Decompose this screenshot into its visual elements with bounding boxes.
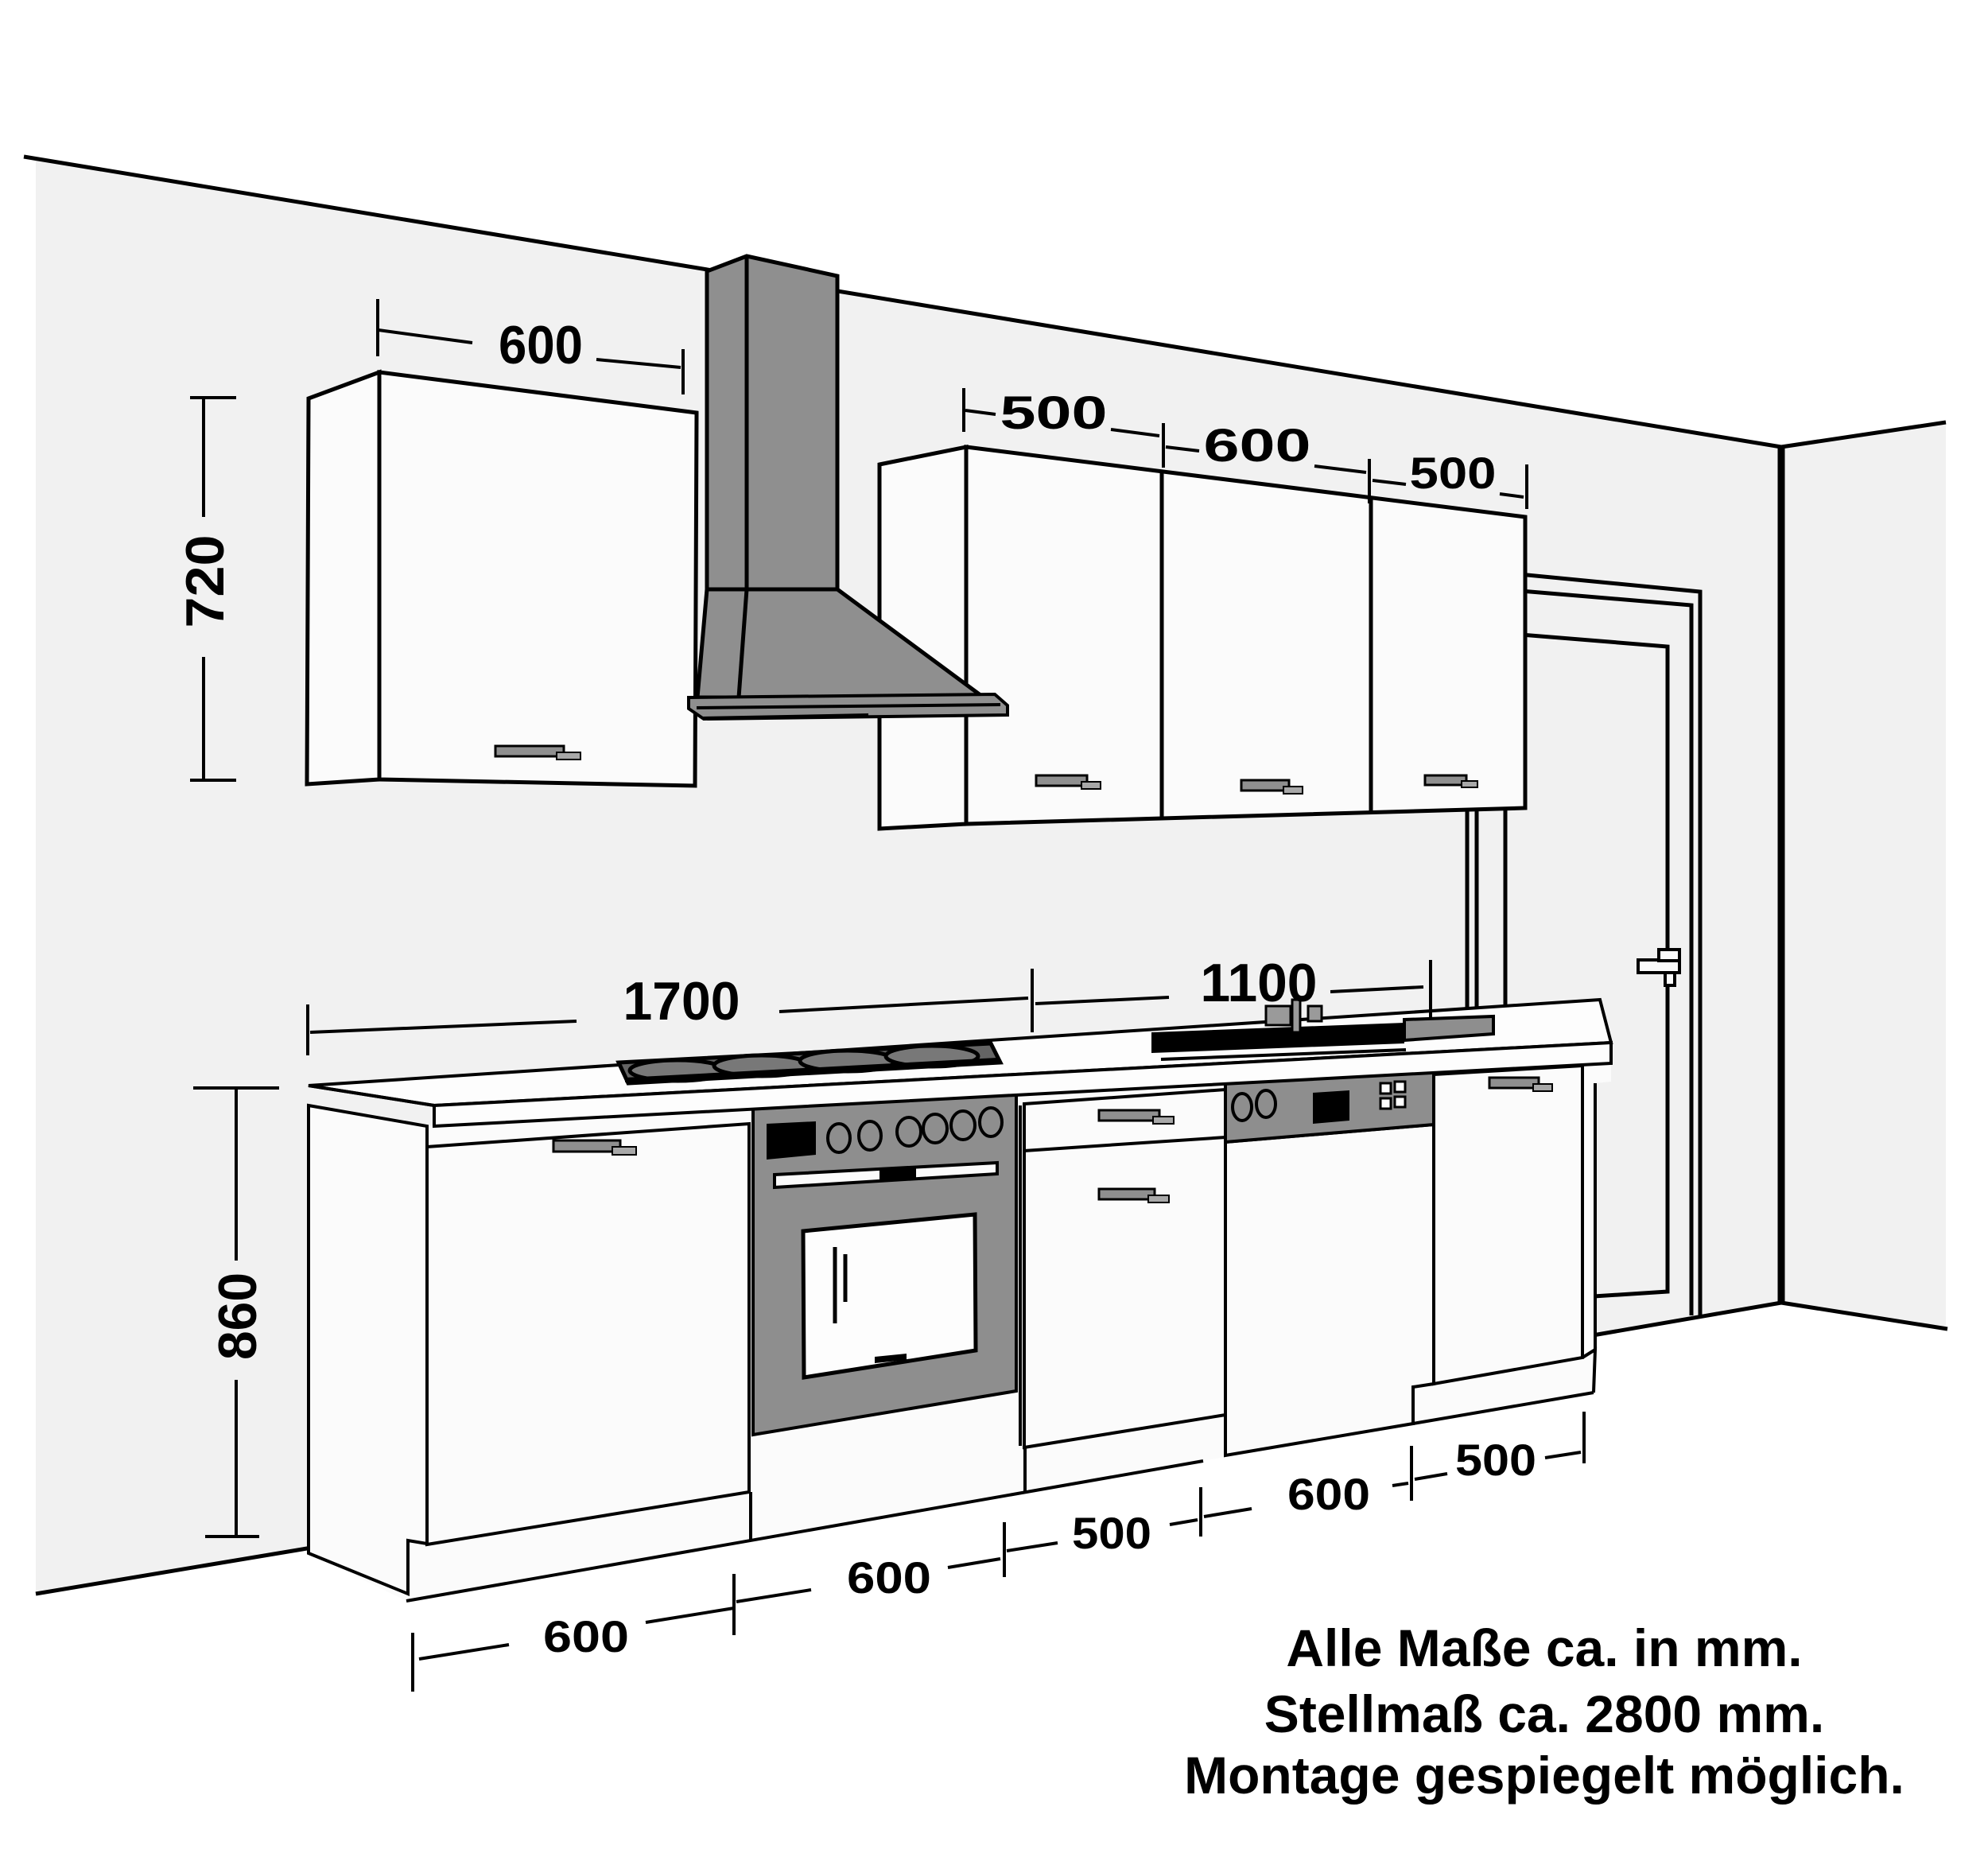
svg-text:500: 500 — [1410, 448, 1497, 498]
svg-text:Stellmaß ca. 2800 mm.: Stellmaß ca. 2800 mm. — [1264, 1684, 1824, 1743]
svg-text:600: 600 — [543, 1611, 629, 1661]
svg-text:860: 860 — [208, 1272, 268, 1360]
svg-text:720: 720 — [175, 535, 235, 628]
svg-text:600: 600 — [847, 1552, 931, 1603]
svg-text:Alle Maße ca. in mm.: Alle Maße ca. in mm. — [1286, 1618, 1802, 1677]
svg-text:600: 600 — [1287, 1469, 1370, 1519]
svg-text:500: 500 — [1000, 387, 1108, 439]
svg-text:500: 500 — [1455, 1435, 1536, 1485]
svg-text:600: 600 — [1204, 420, 1311, 472]
svg-text:500: 500 — [1072, 1508, 1151, 1558]
svg-text:1700: 1700 — [623, 971, 740, 1032]
svg-text:Montage gespiegelt möglich.: Montage gespiegelt möglich. — [1184, 1746, 1905, 1805]
svg-text:600: 600 — [499, 315, 583, 375]
svg-text:1100: 1100 — [1201, 953, 1318, 1013]
